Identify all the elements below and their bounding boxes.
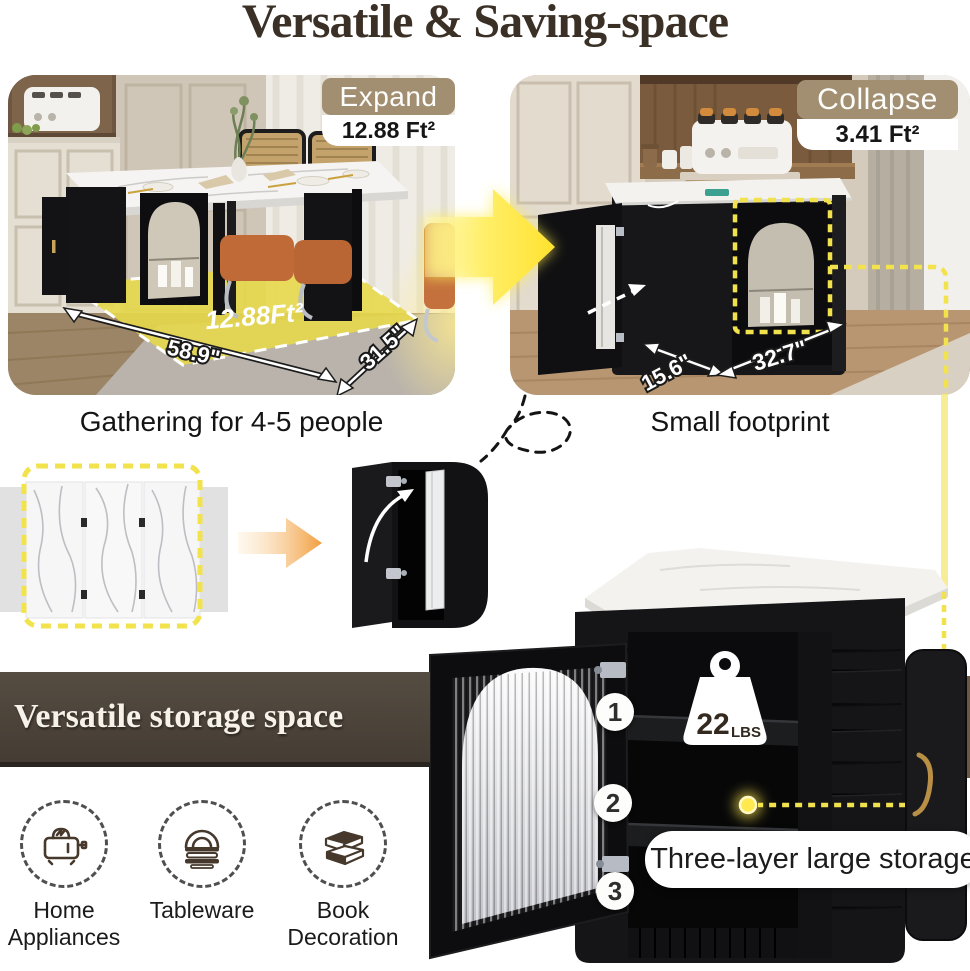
expand-badge: Expand [322,78,455,115]
tableware-icon [176,818,228,870]
collapse-footprint: 3.41 Ft² [797,119,958,150]
layer-marker-1: 1 [596,693,634,731]
feature-ring [158,800,246,888]
books-icon [317,818,369,870]
side-panel [906,650,970,940]
arched-glass-door [140,193,208,305]
toaster-icon [38,818,90,870]
feature-home-appliances: Home Appliances [0,800,128,951]
weight-value: 22 [696,708,729,741]
product-infographic: Versatile & Saving-space [0,0,970,971]
weight-unit: LBS [731,724,761,741]
storage-cabinet: 22 LBS [420,520,970,971]
feature-ring [299,800,387,888]
collapse-badge: Collapse [797,80,958,119]
feature-ring [20,800,108,888]
feature-label: Book Decoration [276,897,410,951]
feature-book-decoration: Book Decoration [276,800,410,951]
storage-callout: Three-layer large storage [645,831,970,888]
page-title: Versatile & Saving-space [0,0,970,49]
collapse-caption: Small footprint [510,406,970,438]
fold-arrow [238,518,322,568]
feature-label: Home Appliances [0,897,128,951]
expand-caption: Gathering for 4-5 people [8,406,455,438]
expand-footprint: 12.88 Ft² [322,115,455,146]
marble-panels [26,482,200,618]
feature-tableware: Tableware [138,800,266,924]
storage-banner: Versatile storage space [0,672,430,767]
feature-label: Tableware [138,897,266,924]
layer-marker-3: 3 [596,872,634,910]
expand-to-collapse-arrow [415,175,565,320]
layer-marker-2: 2 [594,784,632,822]
